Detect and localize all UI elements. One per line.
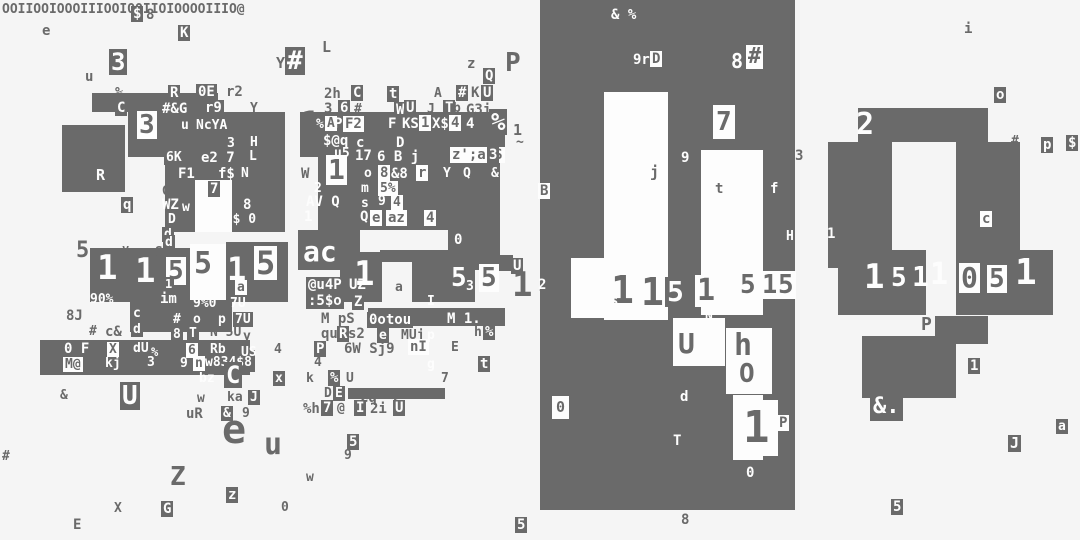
glyph: 6 B j (377, 150, 419, 164)
glyph: u (264, 430, 282, 460)
glyph: 5 (891, 265, 907, 291)
glyph: d (131, 322, 143, 337)
glyph: 1 (97, 251, 117, 285)
glyph: 8 (378, 165, 390, 181)
glyph: 5 (987, 265, 1007, 293)
glyph: z (467, 57, 475, 71)
glyph: 0 (746, 466, 754, 480)
glyph: 0E (196, 84, 217, 100)
glyph: n (193, 356, 205, 371)
glyph: ka (227, 391, 243, 404)
glyph: r (416, 165, 428, 181)
glyph: 4 (314, 356, 322, 369)
glyph: # (1011, 135, 1019, 148)
glyph: D (166, 212, 178, 227)
glyph: @ (224, 182, 232, 195)
glyph: & % (611, 8, 636, 22)
glyph: 1 (735, 400, 778, 456)
glyph: 90% (90, 293, 113, 306)
glyph: d (680, 390, 688, 404)
glyph: i (964, 22, 972, 36)
glyph: 1 (135, 254, 155, 288)
glyph: Q (360, 210, 368, 224)
glyph: 3 (227, 137, 235, 150)
glyph: 5 (479, 264, 499, 292)
glyph: 5 (254, 246, 277, 280)
glyph: 1 (930, 260, 948, 290)
glyph: 1 (163, 277, 174, 291)
glyph: b (657, 134, 665, 148)
glyph: c (980, 211, 992, 227)
glyph: N (705, 310, 713, 323)
glyph: M 1. (447, 312, 481, 326)
glyph: o (191, 312, 203, 327)
glyph: 5 (738, 271, 758, 299)
glyph: # (354, 103, 362, 116)
glyph: 1 (326, 155, 347, 185)
glyph: 7U (230, 297, 246, 310)
glyph: WZ (162, 198, 179, 212)
glyph: v (122, 243, 129, 255)
glyph: ac (303, 238, 337, 266)
glyph: :5$o (306, 293, 344, 309)
glyph: N 5U (210, 326, 241, 339)
block (862, 336, 956, 398)
glyph: $ (1066, 135, 1078, 151)
glyph: 1 (641, 273, 664, 311)
glyph: T (673, 434, 681, 448)
glyph: H (786, 230, 794, 243)
glyph: # (171, 312, 183, 327)
glyph: & (60, 389, 68, 402)
glyph: 8 (731, 51, 743, 71)
glyph: 9%0 (193, 297, 216, 310)
glyph: nI (408, 339, 429, 355)
glyph: j (650, 165, 659, 180)
glyph: 2 (538, 278, 546, 292)
glyph: 2 (856, 110, 874, 140)
glyph: E (451, 341, 459, 354)
glyph: # (89, 325, 97, 338)
glyph: K (178, 25, 190, 41)
glyph: p (1041, 137, 1053, 153)
glyph: 5 (76, 240, 89, 262)
glyph: E (333, 386, 345, 401)
glyph: J (248, 390, 260, 405)
glyph: z (226, 487, 238, 503)
glyph: e (370, 210, 382, 226)
glyph: w (306, 471, 314, 484)
glyph: u (181, 119, 189, 132)
glyph: 0 (452, 232, 464, 248)
glyph: &8 (391, 167, 408, 181)
glyph: 1 (418, 260, 438, 294)
glyph: P (334, 117, 342, 131)
glyph: U (481, 85, 493, 101)
glyph: % (483, 324, 495, 340)
glyph: C (115, 100, 127, 116)
glyph: R (96, 168, 105, 183)
glyph: D (650, 51, 662, 67)
glyph: 1 (912, 263, 929, 291)
glyph: @u4P (306, 277, 344, 293)
glyph: f (770, 182, 778, 196)
glyph: D (324, 387, 332, 400)
glyph: h (734, 331, 752, 361)
glyph: t (715, 182, 723, 196)
glyph: 1 (1015, 255, 1037, 291)
glyph: %h (303, 402, 320, 416)
glyph: 0otou (367, 312, 413, 328)
glyph: h (474, 326, 482, 339)
glyph: 4 (466, 117, 474, 131)
glyph: t (478, 356, 490, 372)
glyph: Y (250, 102, 258, 115)
glyph: 0 (552, 396, 569, 419)
glyph: e2 7 (201, 151, 235, 165)
glyph: % (316, 118, 324, 131)
glyph: Y (276, 56, 285, 71)
glyph: S (155, 246, 163, 259)
glyph: K (471, 86, 479, 100)
glyph: # (746, 45, 763, 69)
glyph: 0 (281, 501, 289, 514)
glyph: bz (199, 372, 215, 385)
glyph: 8J (66, 309, 83, 323)
glyph: Q (483, 68, 495, 84)
glyph: a (395, 281, 403, 294)
glyph: L (322, 40, 331, 55)
glyph: R (168, 85, 180, 101)
glyph: U (678, 330, 695, 358)
glyph: M pS (321, 312, 355, 326)
glyph: I (354, 400, 366, 416)
glyph: # (285, 47, 305, 75)
glyph: 5 (515, 517, 527, 533)
glyph: L (249, 150, 257, 163)
glyph: 1 (864, 260, 884, 294)
glyph: Q (463, 167, 471, 180)
glyph: uR (186, 407, 203, 421)
glitch-canvas: OOIIOOIOOOIIIOOIOOIIOIOOOOIIIO@$8eK3uY#L… (0, 0, 1080, 540)
glyph: N (241, 167, 249, 180)
glyph: r2 (226, 85, 243, 99)
glyph: c& (105, 325, 122, 339)
glyph: P (505, 50, 521, 76)
glyph: C (224, 362, 242, 388)
glyph: B (538, 183, 550, 199)
glyph: c (131, 306, 143, 321)
glyph: % (115, 86, 123, 100)
glyph: E (73, 518, 81, 532)
glyph: P (921, 316, 932, 334)
glyph: % (328, 370, 340, 386)
glyph: 1 (354, 257, 374, 291)
glyph: X$ (432, 117, 449, 131)
glyph: 5 (776, 271, 796, 299)
glyph: e (42, 24, 50, 38)
glyph: U (120, 382, 140, 410)
glyph: im (158, 291, 179, 307)
glyph: 5 (665, 277, 686, 307)
glyph: 6 $ 0 (217, 213, 256, 226)
glyph: 7 (441, 372, 449, 385)
glyph: &. (870, 393, 903, 421)
glyph: 1 (196, 198, 204, 211)
glyph: X (107, 342, 119, 357)
glyph: C (351, 85, 363, 101)
glyph: 7 (321, 400, 333, 416)
glyph: 3 (147, 356, 155, 369)
glyph: q (121, 197, 133, 213)
glyph: 1 (695, 275, 717, 307)
glyph: 6W Sj9 (344, 342, 395, 356)
glyph: F1 (178, 167, 195, 181)
glyph: F (388, 117, 396, 131)
glyph: 5 (891, 499, 903, 515)
glyph: 2h (324, 87, 341, 101)
glyph: g (427, 358, 435, 371)
glyph: M@ (63, 357, 83, 372)
glyph: dU (133, 342, 149, 355)
glyph: G (161, 501, 173, 517)
block (858, 108, 988, 142)
glyph: 3 (109, 49, 127, 75)
glyph: w (197, 392, 205, 405)
glyph: Y (443, 167, 451, 180)
glyph: AV Q (306, 195, 340, 209)
glyph: Z (170, 464, 186, 490)
glyph: a (1056, 419, 1068, 434)
glyph: 9 (344, 449, 352, 462)
glyph: 5 (194, 249, 212, 279)
glyph: d (163, 235, 175, 250)
glyph: 9 (378, 195, 386, 208)
glyph: s2 (348, 327, 365, 341)
glyph: k (306, 372, 314, 385)
glyph: W (301, 167, 309, 181)
glyph: A (434, 87, 442, 100)
glyph: 8 (171, 327, 183, 342)
glyph: 2i (370, 402, 387, 416)
glyph: 4 (424, 210, 436, 226)
glyph: b (453, 102, 461, 115)
glyph: e (222, 410, 246, 450)
glyph: #&G (160, 101, 189, 117)
glyph: # (456, 85, 468, 101)
glyph: y (243, 330, 251, 343)
block (62, 125, 125, 192)
glyph: 3 (324, 102, 332, 116)
glyph: 9 (681, 151, 689, 165)
glyph: NcYA (196, 119, 227, 132)
glyph: az (386, 210, 407, 226)
glyph: H (248, 135, 260, 150)
glyph: P (777, 415, 789, 431)
glyph: qu (321, 327, 338, 341)
glyph: w (180, 200, 192, 215)
glyph: 8 (241, 197, 253, 213)
glyph: & (491, 167, 499, 180)
glyph: U (346, 372, 354, 385)
glyph: 6 (338, 100, 350, 116)
glyph: a (235, 280, 247, 295)
glyph: 4 (391, 195, 403, 210)
block (956, 142, 1020, 268)
glyph: o (994, 87, 1006, 103)
glyph: 1 (827, 227, 835, 241)
glyph: OOIIOOIOOOIIIOOIOOIIOIOOOOIIIO@ (2, 3, 245, 16)
glyph: kj (105, 357, 121, 370)
glyph: 17 (355, 149, 372, 163)
glyph: T (187, 326, 199, 341)
glyph: x (273, 371, 285, 386)
glyph: 8 (681, 513, 689, 527)
glyph: 9 (180, 357, 188, 370)
glyph: 1 (304, 210, 312, 224)
glyph: U (393, 400, 405, 416)
glyph: Z (352, 294, 364, 310)
glyph: 3 (795, 149, 803, 163)
glyph: 0 (959, 263, 980, 293)
glyph: 6K (164, 150, 184, 165)
glyph: f$ (218, 167, 235, 181)
glyph: 3 (137, 111, 157, 139)
glyph: 8 (146, 8, 154, 22)
glyph: s (610, 294, 618, 308)
glyph: J (1008, 435, 1021, 452)
glyph: $ (131, 6, 143, 22)
glyph: 9r (633, 53, 650, 67)
glyph: 1 (968, 358, 980, 374)
glyph: 0 F (64, 342, 89, 356)
glyph: 3 (466, 280, 474, 293)
glyph: 1 (161, 347, 181, 381)
glyph: 4 (449, 115, 461, 131)
glyph: X (114, 502, 122, 515)
glyph: ~ (516, 136, 524, 149)
glyph: G3i (466, 103, 491, 117)
glyph: @ (337, 402, 345, 415)
glyph: u (85, 70, 93, 84)
glyph: # (2, 450, 10, 463)
glyph: 3 (487, 147, 499, 163)
glyph: 1 (419, 115, 431, 131)
glyph: 4 (274, 343, 282, 356)
glyph: m (361, 182, 369, 195)
glyph: U (404, 100, 416, 116)
glyph: 7 (713, 105, 735, 139)
glyph: F2 (343, 116, 364, 132)
glyph: KS (402, 117, 419, 131)
glyph: 7 (208, 181, 220, 197)
glyph: o (364, 167, 372, 180)
glyph: I (427, 295, 435, 308)
glyph: t (387, 86, 399, 102)
glyph: r9 (203, 100, 224, 116)
glyph: O (739, 361, 755, 387)
glyph: % (489, 109, 507, 135)
glyph: 1 (512, 268, 532, 302)
